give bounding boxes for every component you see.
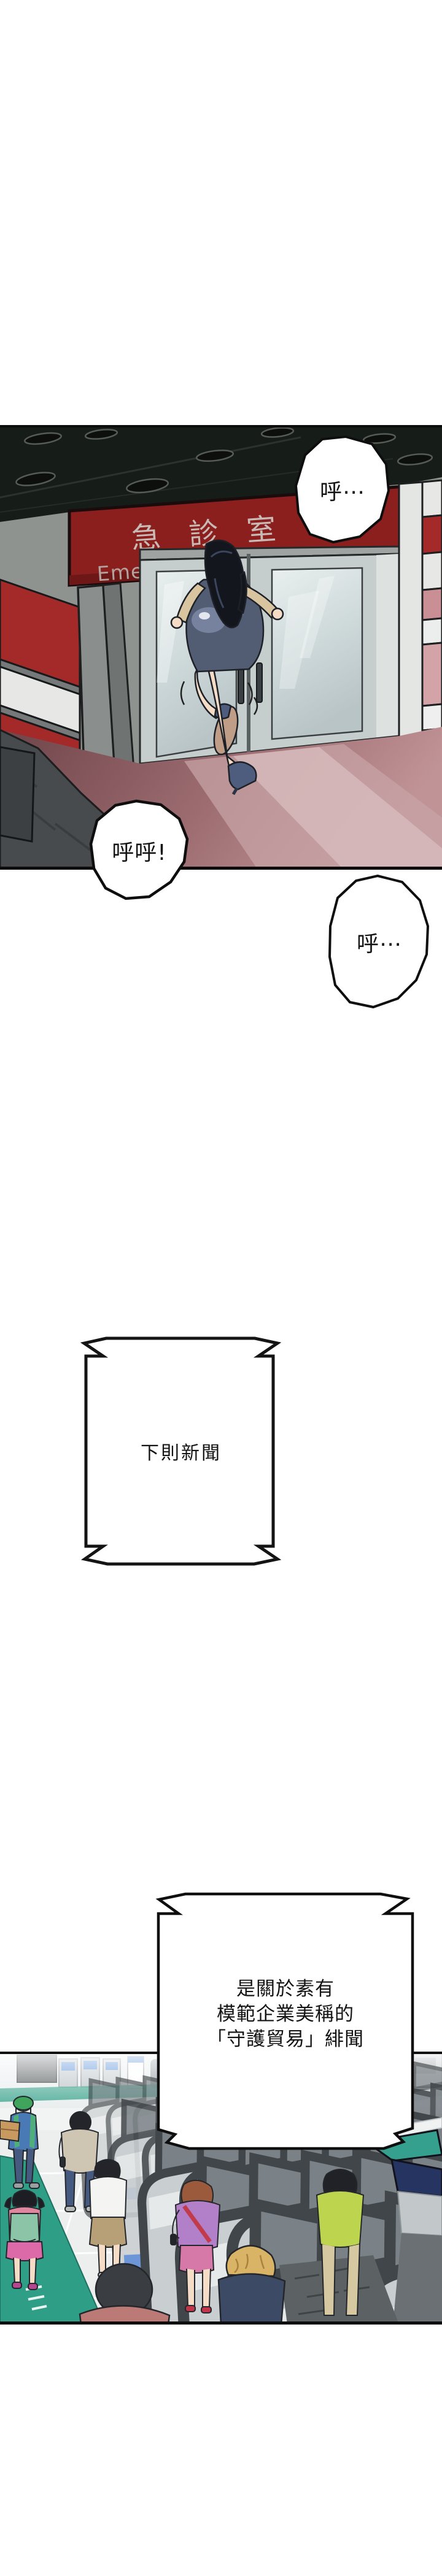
speech-bubble-3: 呼⋯ bbox=[327, 873, 432, 1011]
speech-bubble-2-text: 呼呼! bbox=[112, 835, 166, 867]
reception-desk bbox=[0, 747, 34, 841]
phone bbox=[60, 2157, 65, 2167]
phone bbox=[171, 2234, 176, 2245]
speech-bubble-3-text: 呼⋯ bbox=[357, 926, 402, 958]
speech-bubble-1-text: 呼⋯ bbox=[320, 474, 365, 506]
door-handle-right bbox=[257, 663, 262, 702]
speech-bubble-2: 呼呼! bbox=[88, 799, 190, 903]
news-flash-box: 下則新聞 bbox=[80, 1334, 282, 1568]
narration-box: 是關於素有 模範企業美稱的 「守護貿易」緋聞 bbox=[155, 1890, 416, 2153]
glass-doors bbox=[140, 546, 399, 764]
panel1-border-top bbox=[0, 425, 442, 427]
speech-bubble-1: 呼⋯ bbox=[293, 434, 392, 546]
webtoon-page: 急診室 Emergency Medical Center bbox=[0, 0, 442, 2576]
woman-left-fist bbox=[171, 617, 182, 628]
narration-line-1: 是關於素有 bbox=[207, 1977, 364, 2002]
narration-line-2: 模範企業美稱的 bbox=[207, 2002, 364, 2027]
panel2-border-bottom bbox=[0, 2321, 442, 2325]
panel1-border-bottom bbox=[0, 867, 442, 870]
pillar-face bbox=[398, 2191, 442, 2236]
pillar-base bbox=[393, 2233, 442, 2325]
woman-right-fist bbox=[272, 608, 283, 619]
narration-line-3: 「守護貿易」緋聞 bbox=[207, 2027, 364, 2052]
news-flash-text: 下則新聞 bbox=[141, 1438, 222, 1465]
narration-text: 是關於素有 模範企業美稱的 「守護貿易」緋聞 bbox=[207, 1977, 364, 2052]
